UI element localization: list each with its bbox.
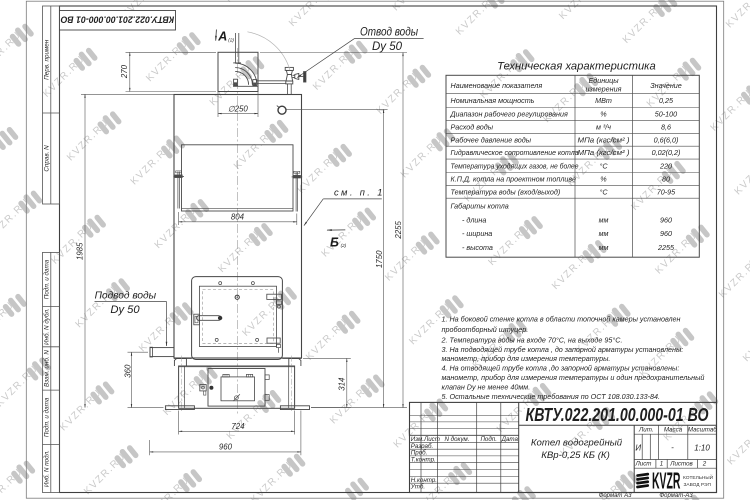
- svg-text:Рабочее давление воды: Рабочее давление воды: [451, 135, 532, 144]
- svg-text:0,6(6,0): 0,6(6,0): [654, 135, 679, 144]
- svg-text:2255: 2255: [394, 221, 403, 240]
- svg-text:Т.контр.: Т.контр.: [411, 456, 436, 463]
- svg-text:360: 360: [124, 364, 133, 378]
- svg-text:0,02(0,2): 0,02(0,2): [652, 148, 681, 157]
- svg-text:8,6: 8,6: [661, 122, 671, 131]
- svg-text:Расход воды: Расход воды: [451, 122, 494, 131]
- svg-text:манометр, прибор для измерения: манометр, прибор для измерения температу…: [442, 373, 705, 382]
- svg-text:724: 724: [231, 422, 245, 431]
- svg-text:Подп.: Подп.: [480, 436, 496, 443]
- svg-text:4. На отводящей трубе котла ,: 4. На отводящей трубе котла ,до запорной…: [442, 363, 680, 372]
- svg-text:-: -: [671, 443, 674, 452]
- svg-text:2: 2: [702, 461, 707, 468]
- svg-text:∅250: ∅250: [228, 104, 249, 113]
- svg-text:Котел водогрейный: Котел водогрейный: [531, 438, 623, 449]
- svg-text:манометр, прибор для измерения: манометр, прибор для измерения температу…: [442, 354, 611, 363]
- svg-text:МПа (кгс/см² ): МПа (кгс/см² ): [578, 135, 630, 144]
- svg-text:Перв. примен: Перв. примен: [44, 39, 51, 80]
- svg-text:КВр-0,25 КБ (К): КВр-0,25 КБ (К): [541, 450, 610, 461]
- svg-text:%: %: [600, 110, 607, 119]
- svg-text:пробоотборный штуцер.: пробоотборный штуцер.: [442, 325, 529, 334]
- svg-text:Подп. и дата: Подп. и дата: [43, 259, 51, 299]
- svg-text:314: 314: [338, 377, 347, 391]
- svg-text:1. На боковой стенке котла в: 1. На боковой стенке котла в области топ…: [442, 315, 681, 324]
- svg-text:50-100: 50-100: [655, 110, 677, 119]
- svg-text:Листов: Листов: [669, 461, 693, 468]
- svg-text:960: 960: [660, 229, 672, 238]
- svg-text:- ширина: - ширина: [462, 229, 492, 238]
- svg-text:Взам. инб. N: Взам. инб. N: [43, 350, 51, 387]
- svg-text:Подп. и дата: Подп. и дата: [43, 397, 51, 437]
- svg-text:Дата: Дата: [501, 436, 519, 443]
- svg-text:Гидравлическое сопротивление к: Гидравлическое сопротивление котла: [451, 148, 579, 157]
- svg-text:Dy 50: Dy 50: [372, 41, 403, 53]
- svg-text:Dy 50: Dy 50: [110, 304, 140, 316]
- svg-text:80: 80: [662, 175, 670, 184]
- svg-text:960: 960: [660, 215, 672, 224]
- svg-text:Формат-А3: Формат-А3: [659, 493, 693, 499]
- svg-text:ЗАВОД РЭП: ЗАВОД РЭП: [684, 482, 712, 488]
- svg-text:°С: °С: [599, 187, 608, 196]
- svg-text:клапан Dy не менее 40мм.: клапан Dy не менее 40мм.: [442, 382, 531, 391]
- svg-text:3. На подводящей трубе котла: 3. На подводящей трубе котла , до запорн…: [442, 345, 684, 354]
- svg-text:Масса: Масса: [664, 427, 683, 434]
- svg-text:Подвод воды: Подвод воды: [95, 289, 157, 301]
- svg-text:Отвод воды: Отвод воды: [360, 25, 418, 39]
- svg-text:КВТУ.022.201.00.000-01 ВО: КВТУ.022.201.00.000-01 ВО: [61, 15, 175, 25]
- svg-text:Утб.: Утб.: [410, 484, 425, 491]
- svg-text:Диапазон рабочего регулировани: Диапазон рабочего регулирования: [450, 110, 569, 119]
- svg-text:К.П.Д. котла на проектном топл: К.П.Д. котла на проектном топливе: [451, 175, 577, 184]
- svg-text:Масштаб: Масштаб: [688, 427, 717, 434]
- svg-text:Габариты котла: Габариты котла: [451, 202, 509, 211]
- svg-text:(2): (2): [228, 38, 234, 43]
- svg-text:%: %: [600, 175, 607, 184]
- svg-text:Наименование показателя: Наименование показателя: [451, 81, 543, 90]
- svg-text:м ³/ч: м ³/ч: [596, 122, 611, 131]
- svg-text:И: И: [635, 444, 641, 453]
- svg-text:А: А: [217, 30, 227, 44]
- svg-text:2. Температура воды на входе: 2. Температура воды на входе 70°С, на вы…: [441, 335, 623, 344]
- svg-text:мм: мм: [599, 215, 609, 224]
- svg-text:Температура уходящих газов, не: Температура уходящих газов, не более: [451, 161, 579, 170]
- svg-text:1750: 1750: [375, 250, 384, 268]
- svg-text:Б: Б: [330, 235, 339, 249]
- svg-text:Изм.Лист: Изм.Лист: [411, 436, 440, 443]
- svg-text:КВТУ.022.201.00.000-01 ВО: КВТУ.022.201.00.000-01 ВО: [526, 405, 709, 425]
- svg-text:Справ. N: Справ. N: [44, 145, 51, 172]
- svg-text:МПа (кгс/см² ): МПа (кгс/см² ): [578, 148, 630, 157]
- svg-text:измерения: измерения: [586, 85, 622, 94]
- svg-text:Номинальная мощность: Номинальная мощность: [451, 96, 535, 105]
- svg-text:220: 220: [659, 161, 672, 170]
- svg-text:Лист: Лист: [635, 461, 652, 468]
- svg-text:- длина: - длина: [462, 215, 486, 224]
- svg-text:- высота: - высота: [462, 243, 493, 252]
- svg-text:Техническая характеристика: Техническая характеристика: [497, 61, 656, 73]
- svg-text:1: 1: [660, 461, 663, 468]
- svg-text:0,25: 0,25: [659, 96, 674, 105]
- svg-text:1:10: 1:10: [694, 444, 710, 453]
- svg-text:Значение: Значение: [650, 81, 682, 90]
- svg-text:Инб. N подл.: Инб. N подл.: [43, 450, 51, 487]
- svg-text:5. Остальные технические треб: 5. Остальные технические требования по О…: [442, 392, 660, 401]
- svg-text:МВт: МВт: [595, 96, 612, 105]
- svg-text:°С: °С: [599, 161, 608, 170]
- svg-text:Инб. N дубл.: Инб. N дубл.: [43, 308, 51, 345]
- svg-text:Температура воды (вход/выход): Температура воды (вход/выход): [451, 187, 561, 196]
- svg-text:Формат А3: Формат А3: [599, 493, 632, 499]
- svg-text:1985: 1985: [75, 242, 84, 260]
- svg-text:(2): (2): [341, 243, 347, 248]
- svg-text:мм: мм: [599, 243, 609, 252]
- svg-text:KVZR: KVZR: [652, 468, 681, 494]
- svg-text:см. п. 1: см. п. 1: [334, 188, 385, 198]
- svg-text:960: 960: [219, 443, 233, 452]
- svg-text:804: 804: [231, 213, 245, 222]
- svg-text:2255: 2255: [657, 243, 675, 252]
- svg-text:N докум.: N докум.: [444, 436, 469, 443]
- svg-text:Лит.: Лит.: [638, 427, 654, 434]
- svg-text:70-95: 70-95: [657, 187, 676, 196]
- svg-text:мм: мм: [599, 229, 609, 238]
- svg-text:270: 270: [120, 64, 129, 79]
